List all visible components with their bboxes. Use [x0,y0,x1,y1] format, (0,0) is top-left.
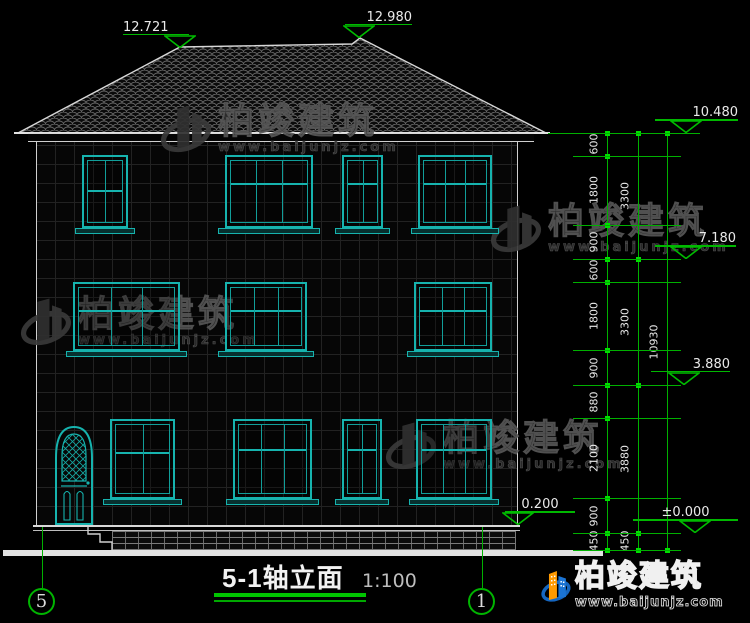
dimension-value: 1800 [589,176,600,204]
dimension-value: 450 [620,531,631,552]
elevation-value: 3.880 [651,358,730,371]
elevation-marker: 10.480 [655,106,738,133]
extension-line [573,498,681,499]
elevation-marker: 7.180 [655,232,736,259]
elevation-marker: 12.980 [345,11,412,38]
extension-line [573,350,681,351]
dimension-value: 900 [589,231,600,252]
dimension-value: 2100 [589,444,600,472]
elevation-drawing-canvas: 5 1 5-1轴立面 1:100 柏竣建筑 www.baijunjz.com 柏… [0,0,750,623]
company-logo-icon [541,555,571,617]
company-logo-url: www.baijunjz.com [575,595,724,610]
elevation-value: 12.980 [345,11,412,24]
extension-line [573,282,681,283]
dimension-value: 900 [589,357,600,378]
elevation-marker: ±0.000 [633,506,738,533]
elevation-marker: 3.880 [651,358,730,385]
dimension-value: 900 [589,505,600,526]
elevation-triangle-icon [679,520,711,533]
dimension-value: 1800 [589,302,600,330]
dimension-line [667,133,668,550]
elevation-triangle-icon [668,372,700,385]
elevation-triangle-icon [670,246,702,259]
elevation-value: ±0.000 [633,506,738,519]
elevation-triangle-icon [670,120,702,133]
extension-line [573,550,681,551]
dimension-line [638,133,639,550]
dimension-value: 880 [589,391,600,412]
elevation-triangle-icon [502,512,534,525]
elevation-value: 0.200 [505,498,575,511]
dimension-line [607,133,608,550]
extension-line [573,156,681,157]
company-logo: 柏竣建筑 www.baijunjz.com [541,555,750,617]
extension-line [573,418,681,419]
elevation-marker: 0.200 [505,498,575,525]
dimension-value: 3300 [620,182,631,210]
elevation-marker: 12.721 [123,21,189,48]
elevation-triangle-icon [343,25,375,38]
extension-line [573,225,681,226]
dimension-annotation-layer: 6001800900600180090088021009004503300330… [0,0,750,623]
elevation-value: 7.180 [655,232,736,245]
dimension-value: 600 [589,134,600,155]
elevation-value: 12.721 [123,21,189,34]
dimension-value: 3880 [620,445,631,473]
dimension-value: 10930 [649,324,660,359]
dimension-value: 600 [589,260,600,281]
dimension-value: 3300 [620,308,631,336]
elevation-value: 10.480 [655,106,738,119]
dimension-value: 450 [589,531,600,552]
company-logo-brand: 柏竣建筑 [575,560,703,593]
elevation-triangle-icon [164,35,196,48]
